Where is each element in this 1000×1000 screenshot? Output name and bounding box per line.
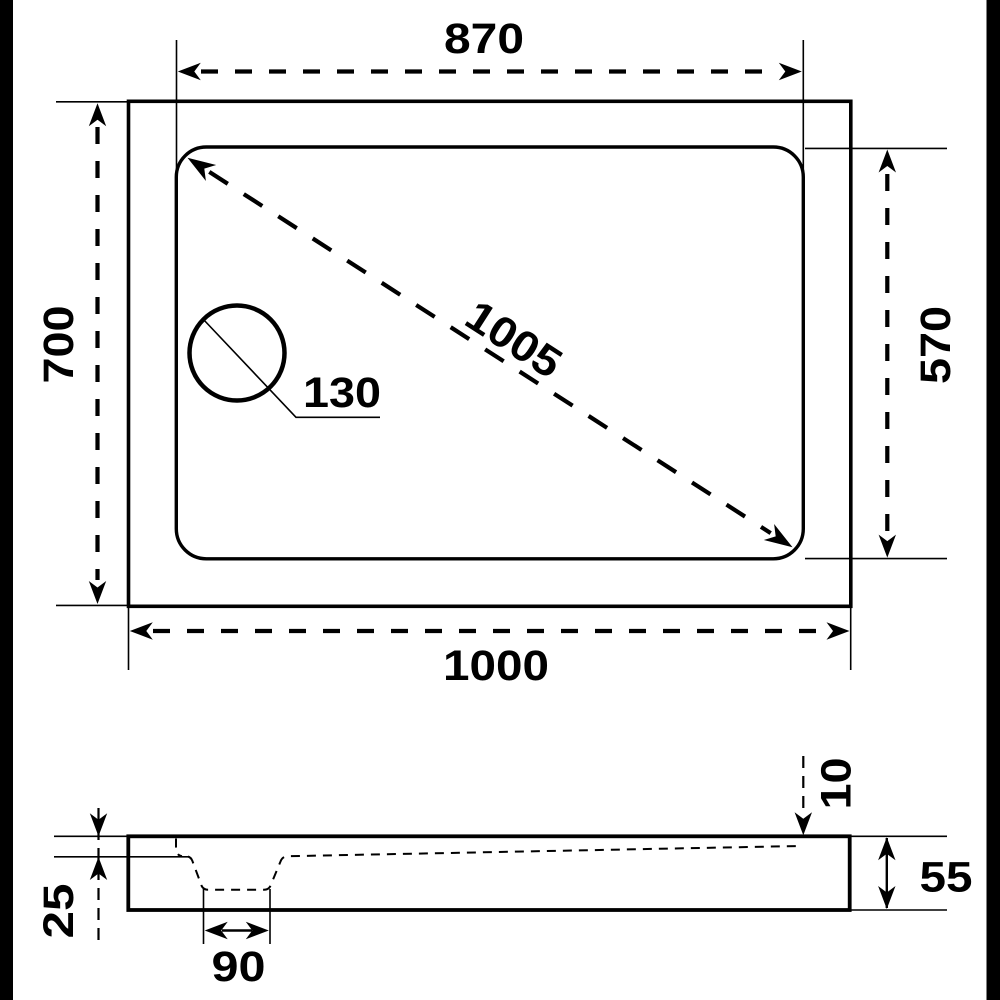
- svg-text:25: 25: [35, 884, 83, 939]
- svg-text:55: 55: [920, 854, 973, 902]
- svg-text:1000: 1000: [443, 642, 549, 690]
- svg-text:90: 90: [212, 943, 266, 991]
- svg-text:570: 570: [912, 306, 960, 384]
- svg-text:130: 130: [303, 369, 381, 417]
- svg-text:10: 10: [812, 758, 860, 810]
- svg-text:700: 700: [35, 306, 83, 384]
- svg-text:870: 870: [444, 15, 524, 63]
